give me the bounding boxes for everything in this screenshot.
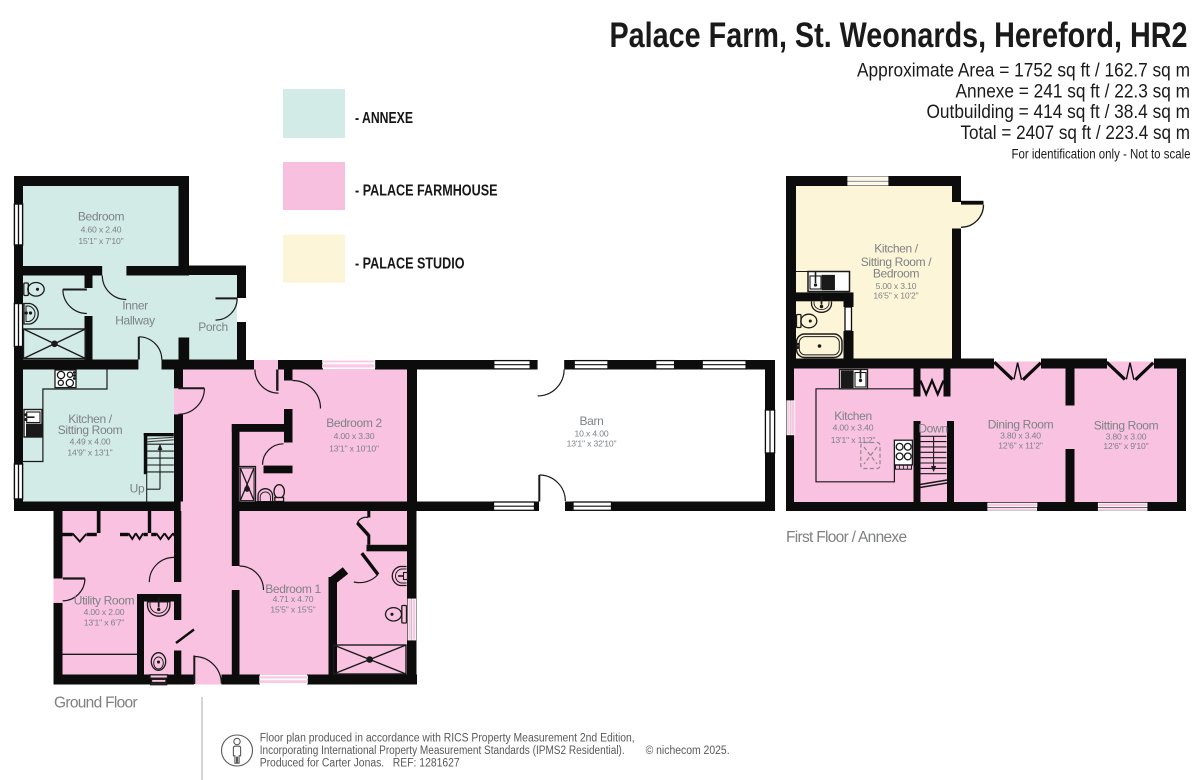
svg-text:Barn: Barn xyxy=(580,414,604,428)
svg-text:15'5" x 15'5": 15'5" x 15'5" xyxy=(270,605,315,615)
svg-text:Outbuilding = 414 sq ft / 38.4: Outbuilding = 414 sq ft / 38.4 sq m xyxy=(927,101,1191,123)
svg-text:13'1" x 32'10": 13'1" x 32'10" xyxy=(567,438,617,448)
svg-text:Kitchen: Kitchen xyxy=(834,409,872,423)
svg-text:Dining Room: Dining Room xyxy=(988,418,1054,432)
svg-text:Hallway: Hallway xyxy=(115,314,155,328)
svg-text:Palace Farm, St. Weonards, Her: Palace Farm, St. Weonards, Hereford, HR2 xyxy=(610,16,1188,55)
svg-text:Sitting Room: Sitting Room xyxy=(1094,419,1159,433)
svg-text:© nichecom 2025.: © nichecom 2025. xyxy=(646,745,730,757)
svg-text:4.00 x 2.00: 4.00 x 2.00 xyxy=(84,607,125,617)
svg-text:Total = 2407 sq ft / 223.4 sq: Total = 2407 sq ft / 223.4 sq m xyxy=(961,122,1191,144)
svg-text:12'6" x 9'10": 12'6" x 9'10" xyxy=(1103,441,1148,451)
svg-text:15'1" x 7'10": 15'1" x 7'10" xyxy=(78,236,123,246)
svg-text:First Floor / Annexe: First Floor / Annexe xyxy=(786,529,906,546)
svg-text:Kitchen /: Kitchen / xyxy=(874,242,919,256)
svg-text:Produced for Carter Jonas. R: Produced for Carter Jonas. REF: 1281627 xyxy=(260,758,460,770)
svg-text:4.00 x 3.30: 4.00 x 3.30 xyxy=(334,431,375,441)
svg-text:13'1" x 10'10": 13'1" x 10'10" xyxy=(329,444,379,454)
svg-text:- PALACE FARMHOUSE: - PALACE FARMHOUSE xyxy=(355,183,498,200)
svg-text:Ground Floor: Ground Floor xyxy=(54,695,137,712)
svg-text:13'1" x 11'2": 13'1" x 11'2" xyxy=(831,435,876,445)
svg-text:4.49 x 4.00: 4.49 x 4.00 xyxy=(70,437,111,447)
svg-text:- ANNEXE: - ANNEXE xyxy=(355,110,413,127)
svg-text:Sitting Room: Sitting Room xyxy=(58,423,123,437)
svg-text:Bedroom 2: Bedroom 2 xyxy=(326,416,382,430)
svg-text:16'5" x 10'2": 16'5" x 10'2" xyxy=(873,291,918,301)
svg-text:3.80 x 3.40: 3.80 x 3.40 xyxy=(1000,431,1041,441)
svg-text:Down: Down xyxy=(918,421,947,435)
svg-text:For identification only - Not: For identification only - Not to scale xyxy=(1012,145,1191,161)
svg-text:Up: Up xyxy=(130,482,145,496)
svg-text:Inner: Inner xyxy=(122,299,148,313)
svg-text:- PALACE STUDIO: - PALACE STUDIO xyxy=(355,255,465,272)
svg-text:4.71 x 4.70: 4.71 x 4.70 xyxy=(273,594,314,604)
svg-text:Porch: Porch xyxy=(198,320,228,334)
svg-text:Bedroom: Bedroom xyxy=(78,210,125,224)
svg-text:Bedroom: Bedroom xyxy=(873,267,920,281)
svg-text:Utility Room: Utility Room xyxy=(74,594,135,608)
svg-text:3.80 x 3.00: 3.80 x 3.00 xyxy=(1106,432,1147,442)
svg-text:5.00 x 3.10: 5.00 x 3.10 xyxy=(876,281,917,291)
svg-text:4.00 x 3.40: 4.00 x 3.40 xyxy=(833,423,874,433)
svg-text:12'6" x 11'2": 12'6" x 11'2" xyxy=(998,441,1043,451)
svg-text:10.x 4.00: 10.x 4.00 xyxy=(574,429,608,439)
svg-text:4.60 x 2.40: 4.60 x 2.40 xyxy=(81,225,122,235)
svg-text:Incorporating International Pr: Incorporating International Property Mea… xyxy=(260,745,625,757)
svg-text:14'9" x 13'1": 14'9" x 13'1" xyxy=(67,448,112,458)
svg-text:13'1" x 6'7": 13'1" x 6'7" xyxy=(84,618,125,628)
svg-text:Floor plan produced in accorda: Floor plan produced in accordance with R… xyxy=(260,733,635,745)
svg-text:Annexe = 241 sq ft / 22.3 sq m: Annexe = 241 sq ft / 22.3 sq m xyxy=(956,80,1191,102)
svg-text:Approximate Area = 1752 sq ft: Approximate Area = 1752 sq ft / 162.7 sq… xyxy=(857,59,1190,81)
